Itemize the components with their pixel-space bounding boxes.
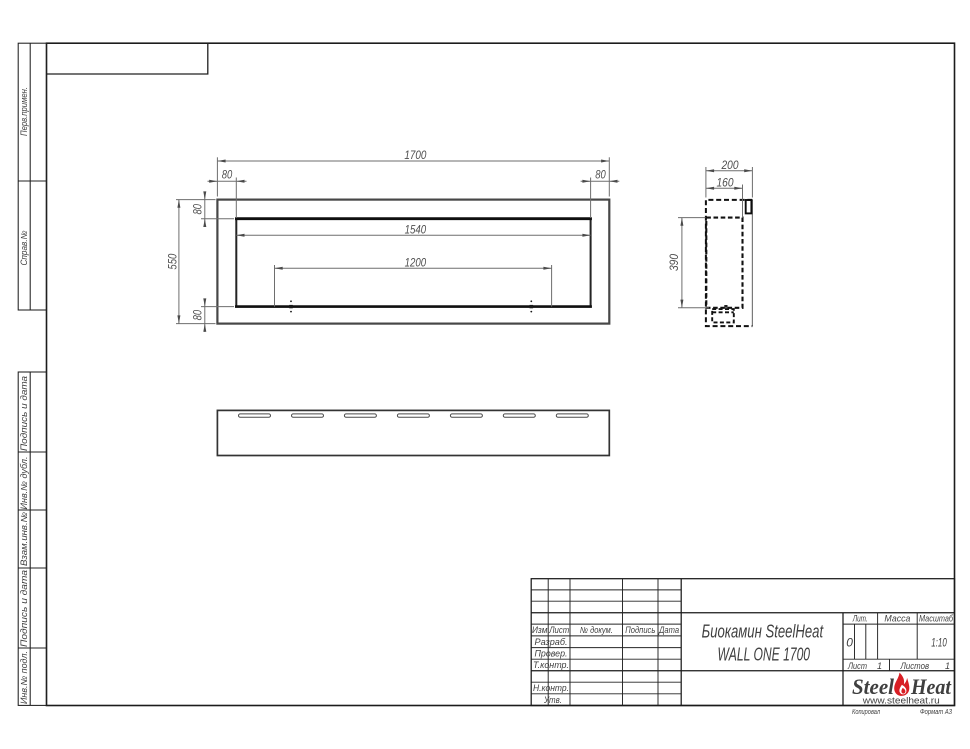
svg-text:1: 1 [945, 661, 950, 671]
svg-text:Утв.: Утв. [543, 695, 562, 705]
svg-text:Листов: Листов [900, 661, 930, 671]
svg-text:80: 80 [595, 168, 606, 182]
svg-text:Взам.инв.№: Взам.инв.№ [19, 512, 29, 566]
svg-text:Провер.: Провер. [535, 649, 568, 659]
svg-text:Разраб.: Разраб. [535, 637, 568, 647]
svg-text:80: 80 [191, 310, 205, 321]
svg-text:Изм: Изм [532, 625, 547, 635]
svg-text:80: 80 [191, 204, 205, 215]
svg-text:1540: 1540 [405, 222, 427, 236]
svg-text:1:10: 1:10 [931, 636, 947, 650]
svg-text:www.steelheat.ru: www.steelheat.ru [862, 696, 940, 707]
svg-text:Подпись: Подпись [625, 625, 655, 635]
svg-text:1200: 1200 [405, 255, 427, 269]
svg-text:Лит.: Лит. [852, 614, 868, 624]
svg-text:Инв.№ подл.: Инв.№ подл. [19, 651, 29, 704]
svg-text:Справ.№: Справ.№ [19, 231, 29, 266]
svg-text:Подпись и дата: Подпись и дата [19, 376, 29, 451]
svg-text:Подпись и дата: Подпись и дата [19, 570, 29, 647]
svg-text:390: 390 [667, 254, 681, 271]
svg-text:Дата: Дата [658, 625, 679, 635]
svg-text:Масса: Масса [884, 614, 910, 624]
svg-text:Т.контр.: Т.контр. [533, 660, 569, 670]
svg-text:1: 1 [877, 661, 882, 671]
svg-text:Биокамин SteelHeat: Биокамин SteelHeat [702, 622, 824, 642]
svg-text:Формат А3: Формат А3 [920, 709, 952, 716]
svg-text:WALL ONE 1700: WALL ONE 1700 [718, 644, 811, 664]
svg-text:Лист: Лист [847, 661, 867, 671]
svg-text:Н.контр.: Н.контр. [533, 683, 569, 693]
svg-text:Лист: Лист [548, 625, 569, 635]
svg-text:Перв.примен.: Перв.примен. [19, 87, 29, 136]
svg-text:№ докум.: № докум. [580, 625, 613, 635]
svg-text:Инв.№ дубл.: Инв.№ дубл. [19, 457, 29, 510]
svg-text:0: 0 [846, 636, 853, 650]
svg-text:200: 200 [721, 158, 739, 172]
svg-text:Копировал: Копировал [852, 709, 880, 716]
svg-text:1700: 1700 [404, 148, 426, 162]
svg-text:80: 80 [222, 168, 233, 182]
svg-text:550: 550 [165, 253, 179, 269]
svg-text:160: 160 [717, 175, 734, 189]
svg-text:Масштаб: Масштаб [919, 614, 954, 624]
